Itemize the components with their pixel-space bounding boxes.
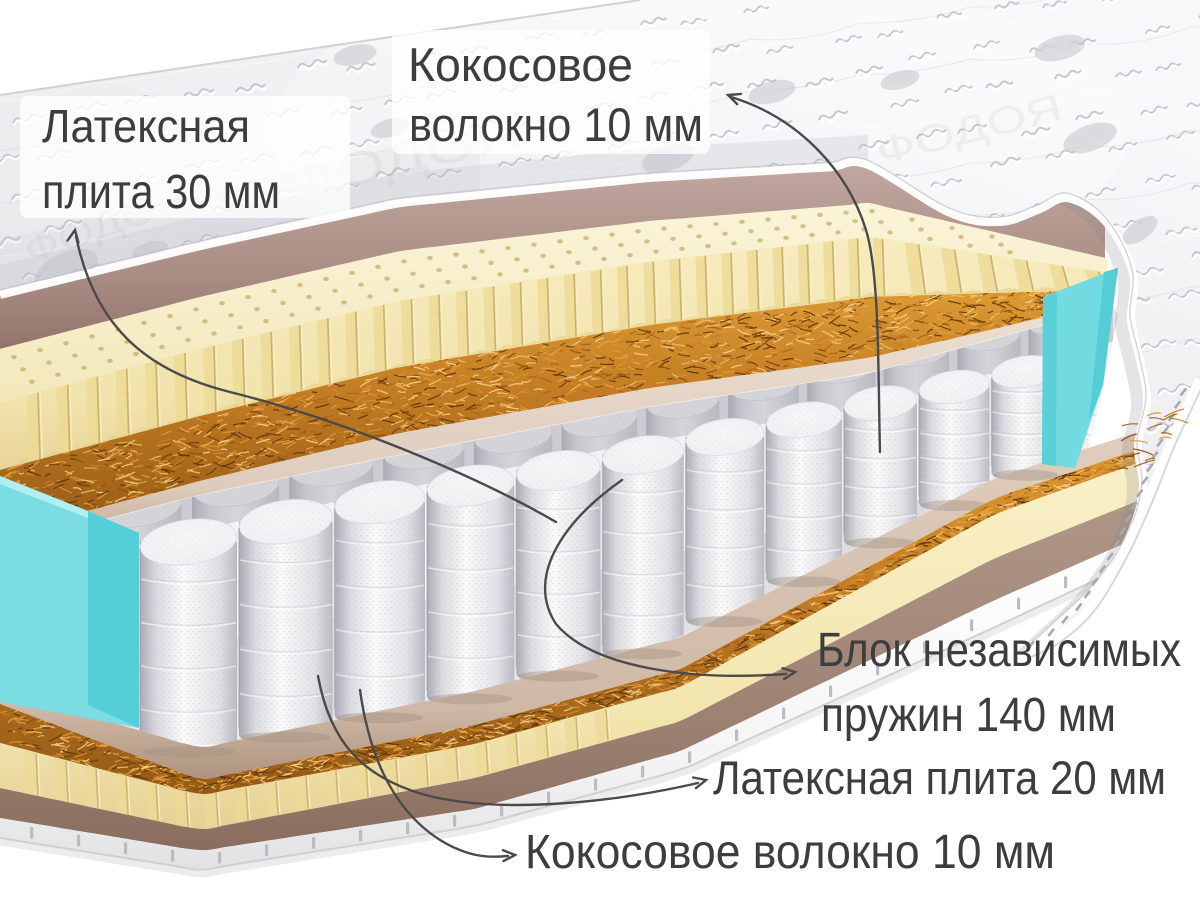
- svg-text:пружин 140 мм: пружин 140 мм: [821, 689, 1116, 742]
- svg-text:Латексная плита 20 мм: Латексная плита 20 мм: [713, 751, 1166, 804]
- svg-text:волокно 10 мм: волокно 10 мм: [409, 98, 703, 151]
- svg-text:плита 30 мм: плита 30 мм: [42, 166, 280, 219]
- svg-text:Кокосовое: Кокосовое: [408, 38, 633, 91]
- svg-text:Кокосовое волокно 10 мм: Кокосовое волокно 10 мм: [525, 826, 1055, 879]
- svg-text:Латексная: Латексная: [42, 100, 250, 152]
- svg-text:Блок независимых: Блок независимых: [817, 624, 1181, 677]
